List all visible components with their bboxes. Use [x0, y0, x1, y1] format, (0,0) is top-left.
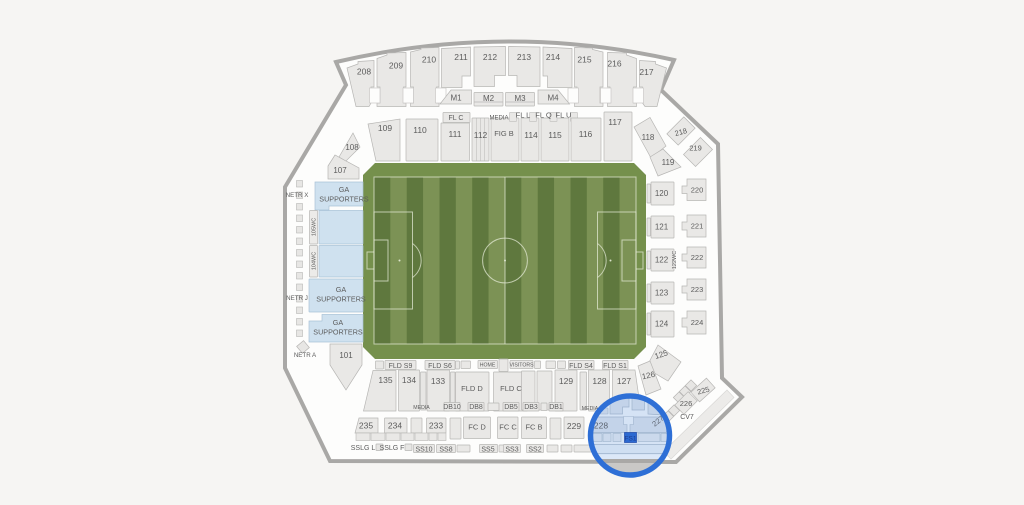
svg-text:FLD S9: FLD S9: [389, 363, 413, 370]
svg-text:228: 228: [594, 421, 608, 431]
svg-text:221: 221: [691, 222, 704, 231]
svg-text:FLD S4: FLD S4: [569, 363, 593, 370]
svg-text:104WC: 104WC: [312, 252, 318, 270]
svg-text:SS2: SS2: [528, 446, 541, 453]
svg-text:M2: M2: [483, 94, 495, 103]
svg-text:235: 235: [359, 421, 373, 431]
svg-text:SS3: SS3: [505, 446, 518, 453]
svg-text:M4: M4: [547, 94, 559, 103]
svg-text:223: 223: [691, 285, 704, 294]
svg-text:220: 220: [691, 185, 704, 194]
svg-text:111: 111: [449, 129, 462, 139]
svg-text:MEDIA: MEDIA: [413, 405, 430, 411]
svg-text:214: 214: [546, 52, 560, 62]
svg-text:123: 123: [655, 289, 669, 298]
svg-text:117: 117: [608, 117, 622, 127]
svg-text:219: 219: [689, 144, 702, 153]
svg-text:VISITORS: VISITORS: [509, 363, 534, 369]
svg-text:122: 122: [655, 256, 669, 265]
svg-text:222: 222: [691, 253, 704, 262]
svg-text:NETR X: NETR X: [286, 192, 309, 199]
svg-text:FL U: FL U: [556, 111, 572, 120]
svg-text:DB3: DB3: [524, 404, 538, 411]
svg-text:208: 208: [357, 67, 371, 77]
svg-text:FLD S6: FLD S6: [428, 363, 452, 370]
svg-text:FC B: FC B: [525, 423, 542, 432]
svg-text:107: 107: [333, 166, 347, 175]
svg-text:215: 215: [577, 55, 591, 65]
svg-text:101: 101: [339, 351, 353, 360]
svg-text:115: 115: [548, 130, 562, 140]
svg-text:224: 224: [691, 318, 704, 327]
svg-text:M1: M1: [450, 94, 462, 103]
svg-text:128: 128: [592, 376, 606, 386]
svg-text:DB1: DB1: [549, 404, 563, 411]
svg-text:NETR J: NETR J: [286, 295, 308, 302]
svg-text:213: 213: [517, 52, 531, 62]
svg-text:122WC: 122WC: [672, 251, 678, 269]
svg-text:118: 118: [642, 133, 655, 142]
svg-text:234: 234: [388, 421, 402, 431]
svg-text:FLD S1: FLD S1: [603, 363, 627, 370]
svg-text:105WC: 105WC: [312, 218, 318, 236]
svg-text:NETR A: NETR A: [294, 352, 317, 359]
svg-text:135: 135: [378, 375, 392, 385]
svg-text:FLD C: FLD C: [500, 384, 522, 393]
svg-text:134: 134: [402, 375, 416, 385]
svg-text:209: 209: [389, 61, 403, 71]
svg-text:M3: M3: [514, 94, 526, 103]
svg-text:127: 127: [617, 376, 631, 386]
svg-text:119: 119: [662, 158, 675, 167]
svg-text:210: 210: [422, 55, 436, 65]
svg-text:SSLG F: SSLG F: [380, 445, 405, 452]
svg-text:SUPPORTERS: SUPPORTERS: [316, 295, 366, 304]
svg-text:121: 121: [655, 223, 669, 232]
svg-text:226: 226: [680, 399, 693, 408]
svg-text:CV7: CV7: [680, 414, 694, 421]
svg-text:129: 129: [559, 376, 573, 386]
svg-text:120: 120: [655, 189, 669, 198]
svg-text:SS5: SS5: [481, 446, 494, 453]
svg-text:HOME: HOME: [480, 363, 496, 369]
svg-text:DB8: DB8: [469, 404, 483, 411]
svg-text:114: 114: [524, 130, 538, 140]
svg-text:GA: GA: [336, 285, 347, 294]
svg-text:133: 133: [431, 376, 445, 386]
svg-text:GA: GA: [333, 318, 344, 327]
svg-text:124: 124: [655, 320, 669, 329]
svg-text:FC D: FC D: [468, 423, 486, 432]
svg-text:109: 109: [378, 123, 392, 133]
svg-text:DB10: DB10: [443, 404, 461, 411]
svg-text:SS8: SS8: [439, 446, 452, 453]
svg-text:FC C: FC C: [499, 423, 517, 432]
svg-text:DB5: DB5: [504, 404, 518, 411]
svg-text:SUPPORTERS: SUPPORTERS: [313, 328, 363, 337]
svg-text:SSLG L: SSLG L: [351, 445, 376, 452]
svg-text:110: 110: [413, 125, 427, 135]
svg-text:FL C: FL C: [449, 115, 464, 122]
svg-text:217: 217: [639, 67, 653, 77]
svg-text:MEDIA: MEDIA: [489, 116, 508, 122]
svg-text:FIG B: FIG B: [494, 129, 514, 138]
svg-text:211: 211: [454, 52, 468, 62]
svg-text:116: 116: [579, 129, 593, 139]
svg-text:GA: GA: [339, 185, 350, 194]
svg-text:SUPPORTERS: SUPPORTERS: [319, 195, 369, 204]
svg-text:112: 112: [474, 130, 488, 140]
svg-text:FLD D: FLD D: [461, 384, 483, 393]
svg-text:SS10: SS10: [415, 446, 432, 453]
svg-text:212: 212: [483, 52, 497, 62]
svg-text:216: 216: [607, 59, 621, 69]
svg-text:FL Q: FL Q: [535, 111, 552, 120]
svg-text:FS1: FS1: [625, 436, 637, 443]
svg-text:108: 108: [345, 143, 359, 152]
svg-text:FL L: FL L: [516, 111, 531, 120]
svg-text:229: 229: [567, 421, 581, 431]
svg-text:233: 233: [429, 421, 443, 431]
